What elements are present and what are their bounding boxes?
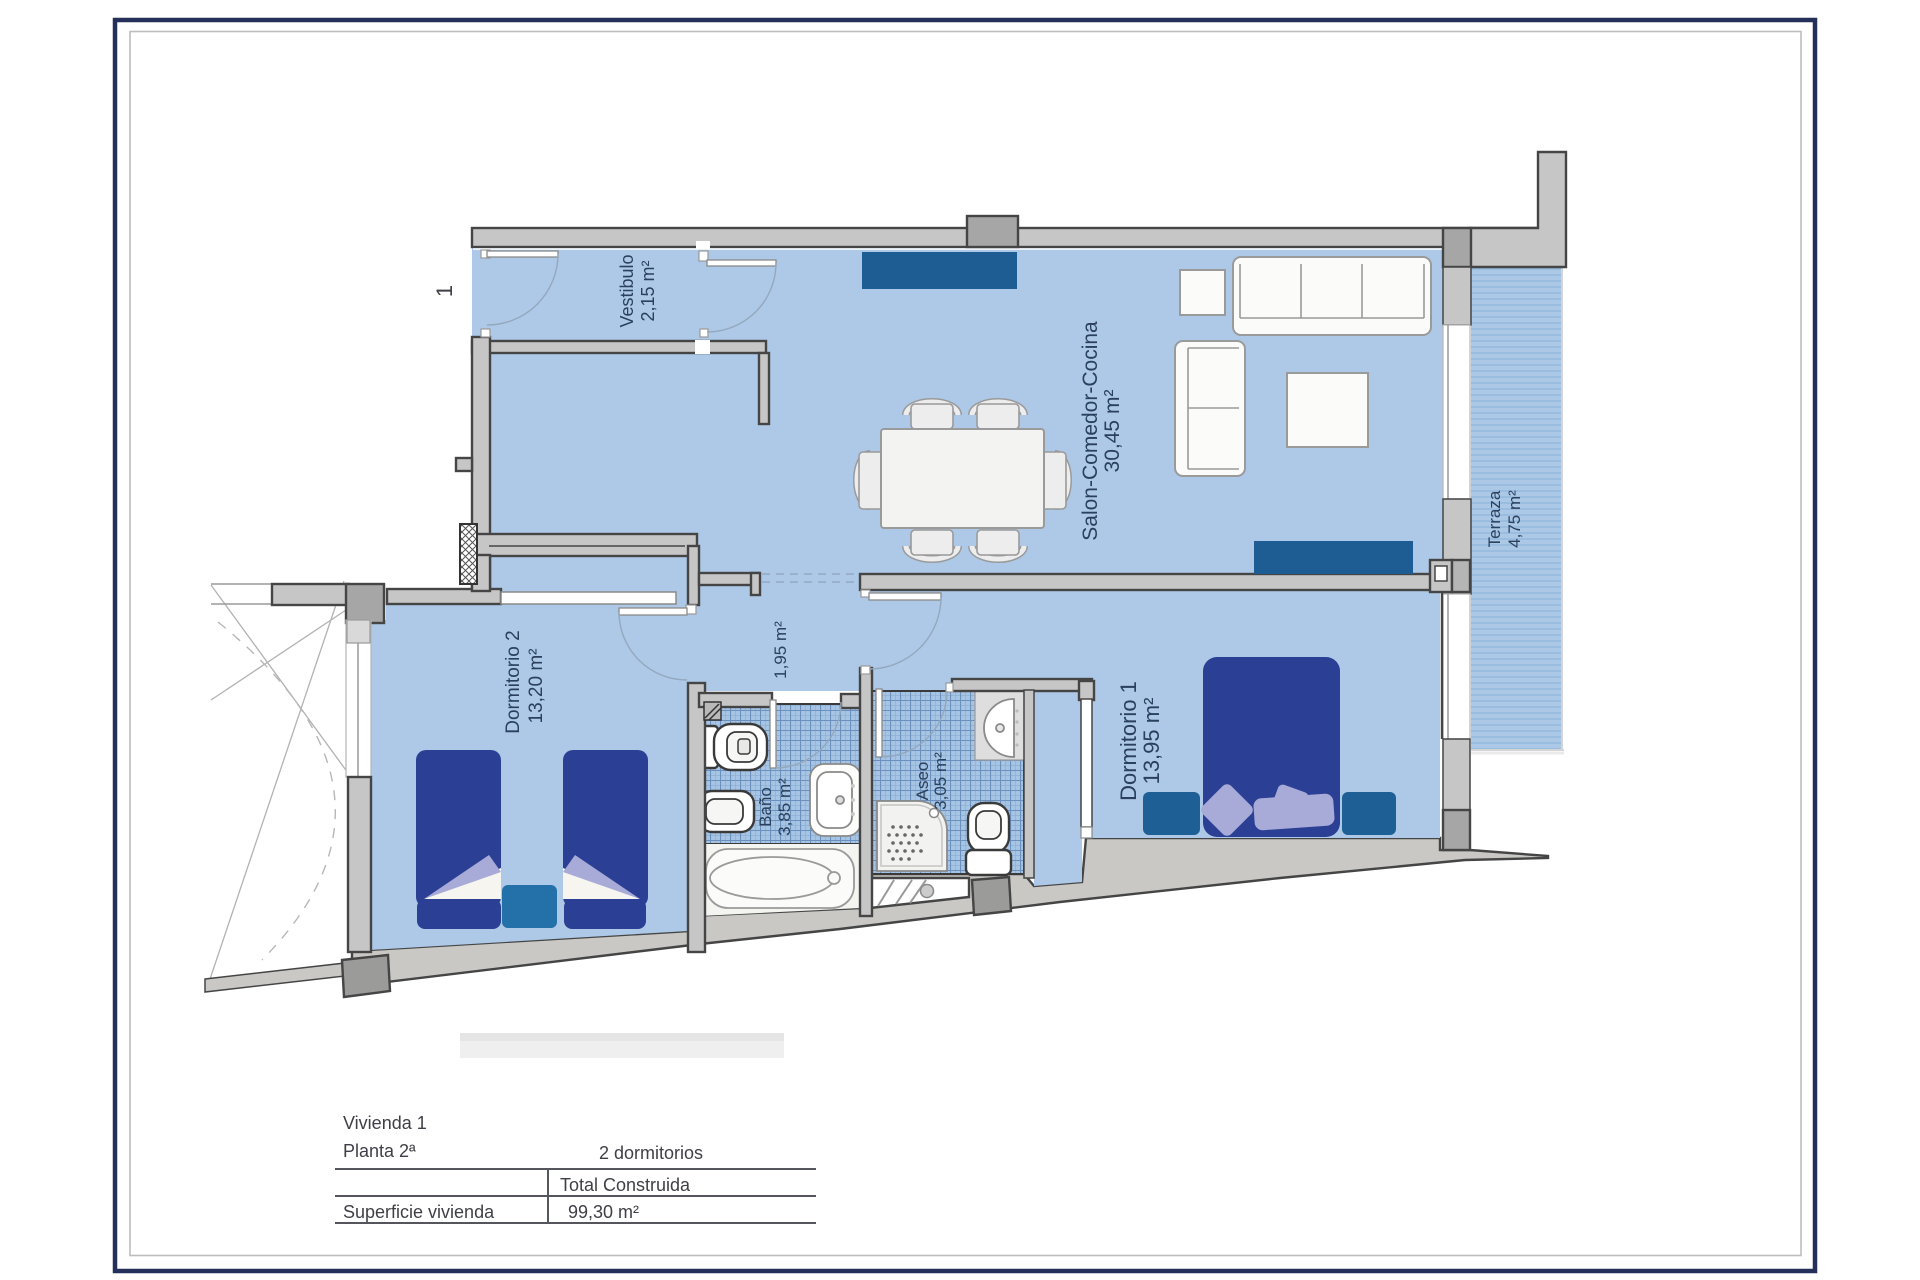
svg-text:Terraza: Terraza	[1485, 490, 1504, 547]
svg-text:2,15 m²: 2,15 m²	[638, 260, 658, 321]
svg-text:99,30 m²: 99,30 m²	[568, 1202, 639, 1222]
svg-text:2 dormitorios: 2 dormitorios	[599, 1143, 703, 1163]
svg-text:13,20 m²: 13,20 m²	[526, 649, 547, 724]
svg-text:Baño: Baño	[756, 787, 775, 827]
svg-text:Aseo: Aseo	[913, 762, 932, 801]
svg-text:3,85 m²: 3,85 m²	[775, 778, 794, 836]
svg-text:3,05 m²: 3,05 m²	[931, 752, 950, 810]
svg-text:Planta 2ª: Planta 2ª	[343, 1141, 416, 1161]
svg-text:Salon-Comedor-Cocina: Salon-Comedor-Cocina	[1079, 321, 1102, 541]
svg-text:Total Construida: Total Construida	[560, 1175, 691, 1195]
svg-text:Superficie vivienda: Superficie vivienda	[343, 1202, 495, 1222]
svg-text:Vestibulo: Vestibulo	[617, 254, 637, 327]
svg-text:1,95 m²: 1,95 m²	[771, 621, 790, 679]
svg-text:13,95 m²: 13,95 m²	[1139, 698, 1164, 785]
svg-text:Dormitorio 2: Dormitorio 2	[503, 630, 524, 733]
svg-text:Dormitorio 1: Dormitorio 1	[1116, 681, 1141, 801]
svg-text:4,75 m²: 4,75 m²	[1505, 490, 1524, 548]
svg-text:1: 1	[432, 285, 457, 297]
svg-text:30,45 m²: 30,45 m²	[1101, 390, 1124, 473]
svg-text:Vivienda 1: Vivienda 1	[343, 1113, 427, 1133]
